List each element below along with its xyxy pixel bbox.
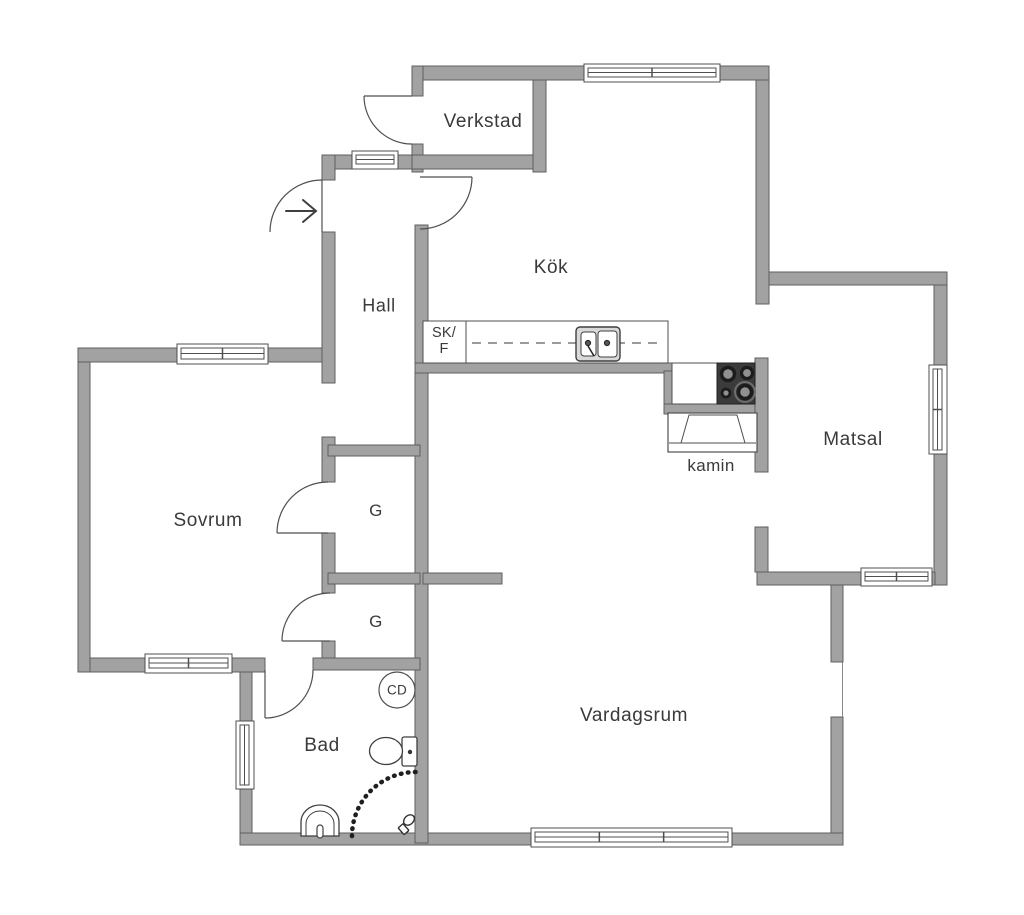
fireplace-icon <box>668 413 757 452</box>
window <box>236 721 254 789</box>
window <box>929 365 947 454</box>
door-arc <box>265 670 313 718</box>
floor-plan-drawing <box>0 0 1024 915</box>
room-label-kamin: kamin <box>687 456 734 476</box>
door-arc <box>270 180 322 232</box>
washbasin-icon <box>301 805 339 838</box>
skf-line2: F <box>439 341 448 357</box>
room-label-matsal: Matsal <box>823 429 883 451</box>
stove-icon <box>672 363 755 404</box>
room-label-closet-1: G <box>369 501 383 521</box>
windows <box>145 64 947 847</box>
toilet-icon <box>370 737 418 766</box>
entry-arrow-icon <box>286 200 316 222</box>
kitchen-counter <box>423 321 668 363</box>
fixtures <box>286 200 757 838</box>
room-label-sovrum: Sovrum <box>173 510 242 532</box>
room-label-verkstad: Verkstad <box>444 111 523 133</box>
window <box>861 568 932 586</box>
skf-line1: SK/ <box>432 325 456 341</box>
kitchen-sink-icon <box>576 327 620 361</box>
window <box>352 151 398 169</box>
shower-icon <box>352 772 416 836</box>
window <box>145 654 232 673</box>
floor-plan: Verkstad Kök Hall Sovrum Matsal Vardagsr… <box>0 0 1024 915</box>
walls <box>78 66 947 845</box>
room-label-kok: Kök <box>534 257 569 279</box>
room-label-cd: CD <box>387 683 407 698</box>
room-label-hall: Hall <box>362 296 395 317</box>
window <box>531 828 732 847</box>
room-label-closet-2: G <box>369 612 383 632</box>
window <box>584 64 720 82</box>
door-arc <box>282 593 330 641</box>
door-arc <box>277 482 328 533</box>
room-label-vardagsrum: Vardagsrum <box>580 705 688 727</box>
door-arc <box>420 177 472 229</box>
room-label-bad: Bad <box>304 735 340 757</box>
window <box>177 344 268 364</box>
door-arc <box>364 96 412 144</box>
room-label-skf: SK/F <box>432 326 456 358</box>
